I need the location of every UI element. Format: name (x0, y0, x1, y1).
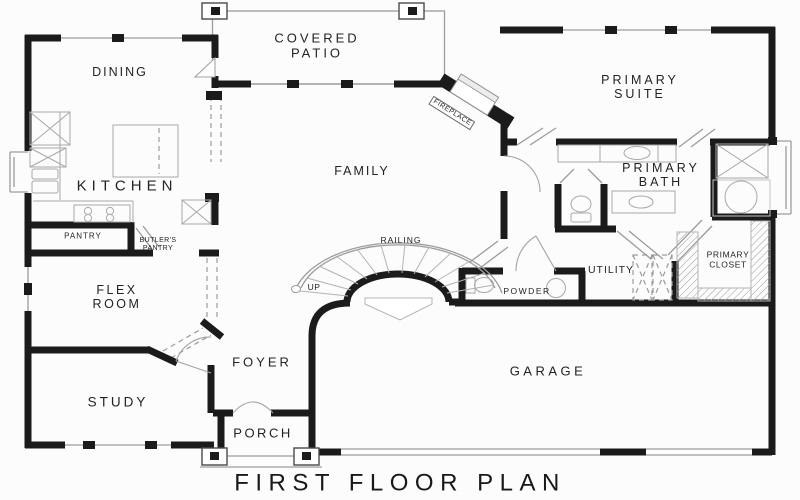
room-label-utility: UTILITY (588, 265, 634, 277)
room-label-powder: POWDER (503, 287, 550, 297)
room-label-flex-room: FLEX ROOM (93, 283, 142, 311)
room-label-foyer: FOYER (232, 356, 292, 371)
stair-label-up: UP (308, 283, 321, 293)
room-label-porch: PORCH (233, 427, 292, 442)
stair-label-railing: RAILING (380, 236, 421, 246)
laundry-appliances (633, 255, 672, 300)
room-label-pantry: PANTRY (64, 233, 102, 242)
room-label-study: STUDY (88, 394, 149, 409)
floor-plan-canvas: DINING COVERED PATIO PRIMARY SUITE KITCH… (0, 0, 800, 500)
room-label-family: FAMILY (334, 164, 390, 178)
room-label-primary-closet: PRIMARY CLOSET (707, 250, 750, 269)
room-label-kitchen: KITCHEN (77, 179, 178, 196)
room-label-primary-bath: PRIMARY BATH (622, 161, 700, 189)
kitchen-fixtures (30, 112, 211, 224)
doors (136, 58, 715, 413)
room-label-dining: DINING (92, 65, 148, 79)
room-label-garage: GARAGE (510, 365, 587, 380)
dashed-archways (163, 96, 221, 358)
room-label-butlers-pantry: BUTLER'S PANTRY (140, 237, 177, 253)
room-label-primary-suite: PRIMARY SUITE (601, 73, 679, 101)
room-label-covered-patio: COVERED PATIO (274, 31, 359, 60)
plan-title: FIRST FLOOR PLAN (234, 471, 566, 498)
